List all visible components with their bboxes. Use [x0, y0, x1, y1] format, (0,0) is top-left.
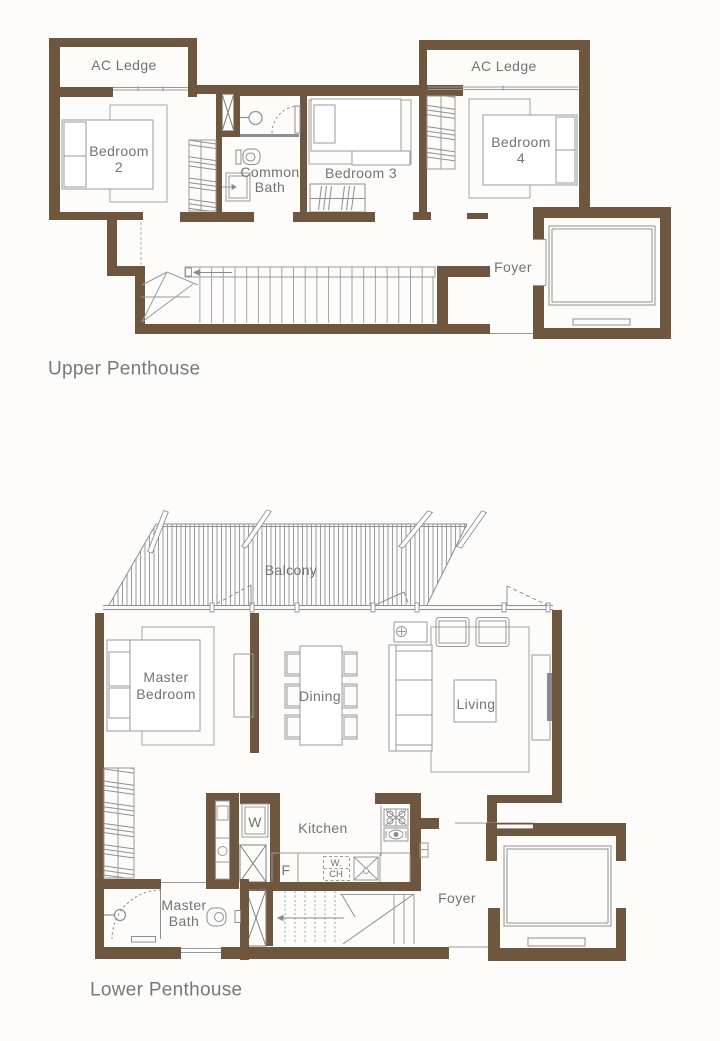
- svg-text:Foyer: Foyer: [494, 259, 532, 275]
- svg-text:Master: Master: [143, 669, 188, 685]
- svg-text:Balcony: Balcony: [265, 562, 318, 578]
- svg-text:Upper Penthouse: Upper Penthouse: [48, 359, 200, 380]
- svg-text:Lower Penthouse: Lower Penthouse: [90, 980, 242, 1001]
- svg-text:F: F: [282, 862, 291, 878]
- svg-text:Dining: Dining: [299, 688, 341, 704]
- svg-text:W.: W.: [330, 858, 341, 869]
- svg-text:Master: Master: [161, 897, 206, 913]
- svg-text:Bedroom: Bedroom: [89, 143, 149, 159]
- svg-text:Bedroom: Bedroom: [136, 686, 196, 702]
- svg-text:Bath: Bath: [169, 913, 199, 929]
- svg-text:Bath: Bath: [255, 179, 285, 195]
- svg-text:W: W: [248, 814, 262, 830]
- svg-text:AC Ledge: AC Ledge: [91, 57, 156, 73]
- svg-text:Bedroom 3: Bedroom 3: [325, 165, 397, 181]
- svg-text:AC Ledge: AC Ledge: [471, 58, 536, 74]
- svg-text:Living: Living: [457, 696, 496, 712]
- svg-text:CH: CH: [329, 869, 343, 880]
- svg-text:Bedroom: Bedroom: [491, 134, 551, 150]
- svg-text:Common: Common: [240, 164, 299, 180]
- svg-text:Kitchen: Kitchen: [298, 820, 348, 836]
- svg-text:4: 4: [517, 150, 525, 166]
- svg-text:2: 2: [115, 159, 123, 175]
- svg-text:Foyer: Foyer: [438, 890, 476, 906]
